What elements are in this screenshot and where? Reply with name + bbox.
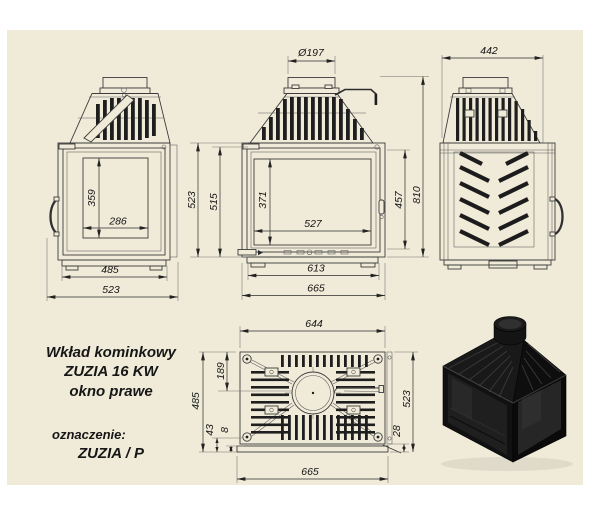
dim-side-window-width: 286 <box>108 216 127 228</box>
dim-front-window-height: 371 <box>257 191 269 209</box>
dim-top-flue-offset: 189 <box>215 362 227 380</box>
dim-front-inner-height-left: 515 <box>208 193 220 211</box>
dim-side-body-width: 485 <box>101 264 119 276</box>
dim-rear-overall-width: 442 <box>480 45 498 57</box>
dim-top-front-gap: 43 <box>204 424 216 436</box>
product-title-line3: okno prawe <box>36 384 186 399</box>
product-title-line1: Wkład kominkowy <box>36 345 186 360</box>
dim-front-door-height: 457 <box>393 190 405 209</box>
dim-side-overall-width: 523 <box>102 284 120 296</box>
designation-label: oznaczenie: <box>52 428 126 441</box>
dim-front-overall-height: 810 <box>411 186 423 204</box>
dim-top-inner-depth: 485 <box>190 392 202 410</box>
dim-top-overall-depth: 523 <box>401 390 413 408</box>
dim-front-overall-height-left: 523 <box>186 191 198 209</box>
designation-value: ZUZIA / P <box>36 446 186 461</box>
dim-front-overall-width: 665 <box>307 283 325 295</box>
dim-top-overall-width: 665 <box>301 466 319 478</box>
drawing-sheet: 359 286 485 523 Ø197 <box>0 0 608 519</box>
dim-side-window-height: 359 <box>86 189 98 207</box>
dim-front-inner-width: 613 <box>307 263 325 275</box>
dim-top-rear-gap: 28 <box>391 425 403 438</box>
dim-top-inner-width: 644 <box>305 318 323 330</box>
dim-front-window-width: 527 <box>304 218 323 230</box>
dim-top-plate-gap: 8 <box>219 427 231 433</box>
product-title-line2: ZUZIA 16 KW <box>36 364 186 379</box>
dim-front-flue-diameter: Ø197 <box>297 47 325 59</box>
